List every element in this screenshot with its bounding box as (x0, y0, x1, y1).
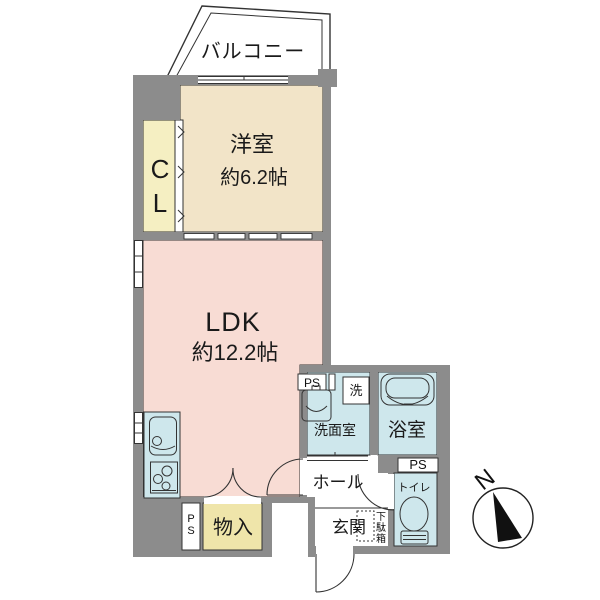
balcony-window (198, 76, 288, 84)
ps-right-label: PS (409, 457, 427, 472)
window-ldk-upper (134, 240, 143, 288)
svg-text:P: P (187, 513, 194, 525)
storage-label: 物入 (213, 516, 253, 539)
toilet-door-opening (388, 474, 394, 509)
floor-plan: バルコニー (0, 0, 600, 600)
ldk-door-opening (300, 458, 307, 495)
western-room-label: 洋室 (230, 132, 274, 157)
entrance-label: 玄関 (332, 518, 366, 537)
closet-label-c: C (151, 154, 170, 184)
hall-label: ホール (313, 473, 364, 492)
ps-top-label: PS (304, 376, 320, 390)
wall-wet-top (300, 365, 450, 372)
western-room-size: 約6.2帖 (220, 166, 288, 189)
balcony-label: バルコニー (201, 41, 306, 63)
door-arc-entrance (316, 554, 354, 592)
storage-opening (204, 496, 261, 504)
shoe-box-label: 下 駄 箱 (376, 512, 386, 545)
wall-right-upper (323, 75, 331, 372)
washroom-label: 洗面室 (314, 422, 356, 438)
entrance-door-opening (316, 546, 353, 554)
entrance-alcove (272, 503, 308, 557)
toilet-label: トイレ (398, 482, 431, 494)
ldk-label: LDK (205, 307, 261, 337)
closet-label-l: L (153, 188, 167, 218)
balcony: バルコニー (167, 6, 330, 77)
wall-wash-bath-divider (370, 372, 378, 455)
window-kitchen (134, 412, 143, 444)
bathroom-label: 浴室 (388, 419, 426, 441)
svg-text:下: 下 (376, 512, 386, 523)
compass: N (470, 464, 533, 548)
room-western (180, 85, 323, 232)
svg-text:箱: 箱 (376, 532, 386, 545)
wall-left (133, 75, 143, 557)
ldk-size: 約12.2帖 (192, 340, 279, 365)
svg-text:駄: 駄 (376, 521, 386, 534)
washer-label: 洗 (349, 383, 362, 398)
svg-text:S: S (187, 525, 194, 537)
ps-top-tab (329, 374, 335, 390)
ps-bottom-label: P S (187, 513, 194, 537)
